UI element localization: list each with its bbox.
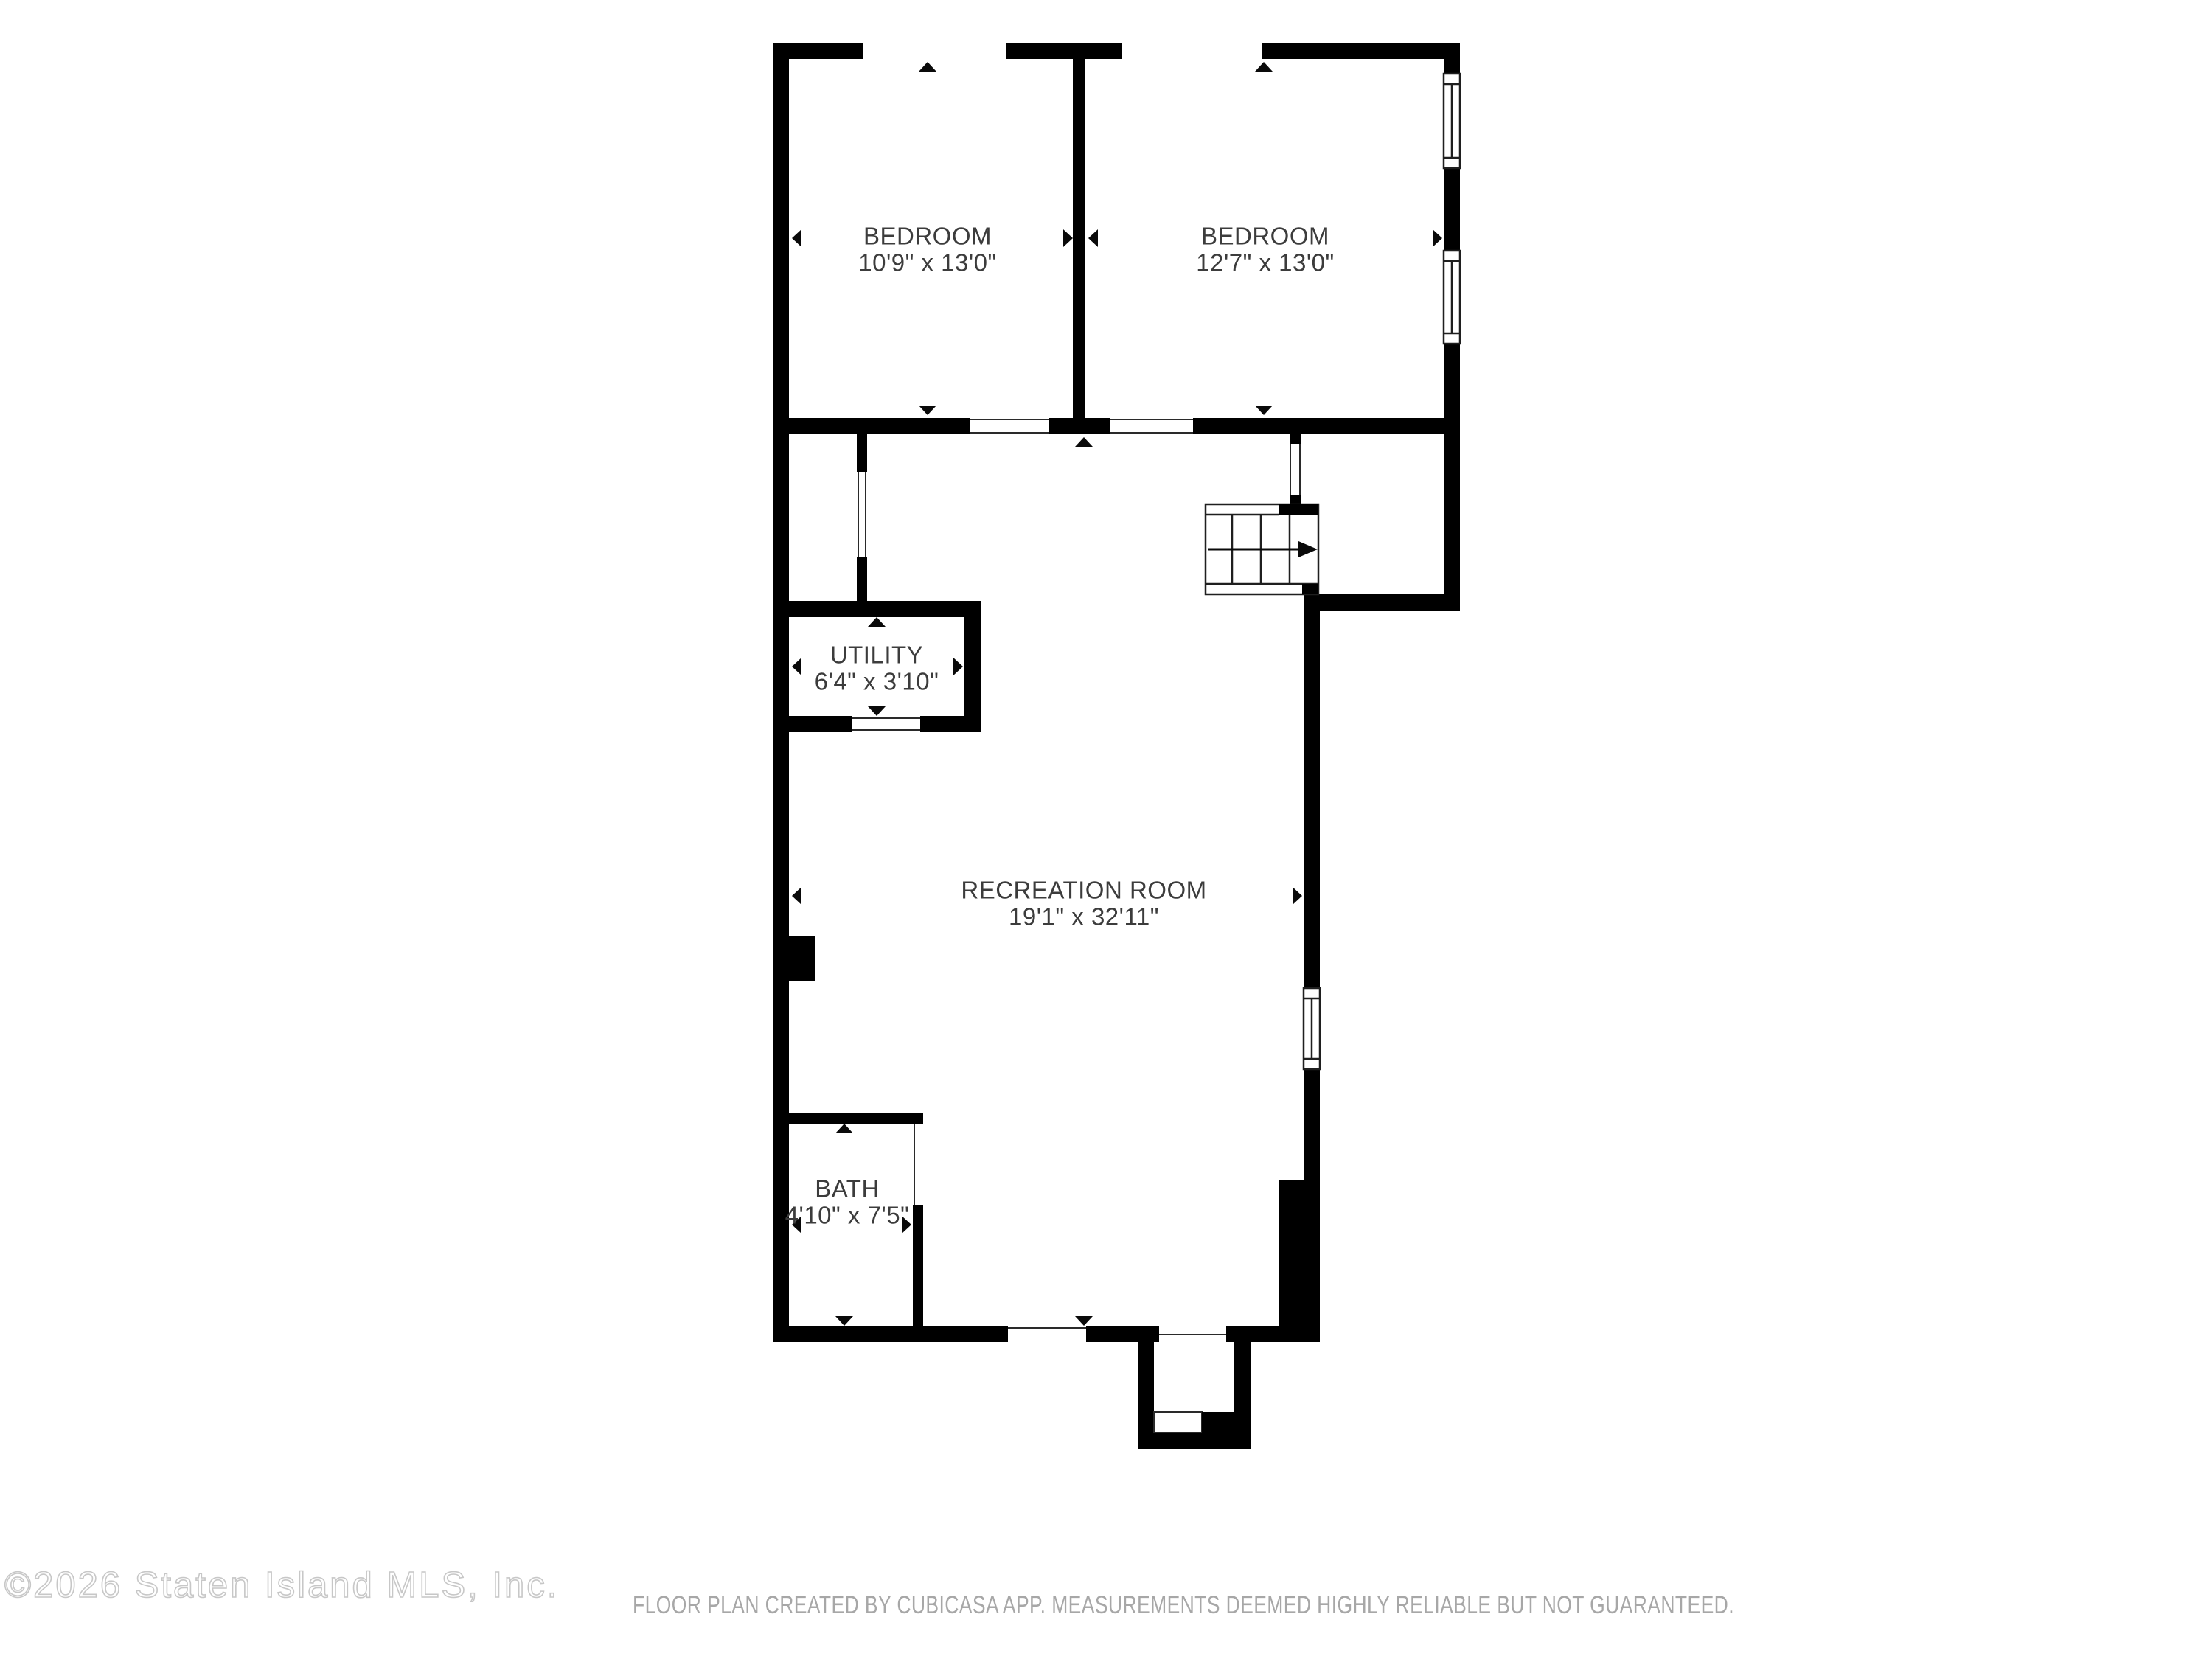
dimension-arrow-icon	[868, 617, 886, 627]
room-label-bath: BATH	[815, 1175, 880, 1203]
porch-step	[1154, 1412, 1202, 1433]
dimension-arrow-icon	[1255, 406, 1273, 415]
knee-wall	[1290, 441, 1300, 498]
wall-segment	[1086, 1326, 1159, 1342]
porch-step-side	[1202, 1412, 1234, 1433]
room-dims-recreation: 19'1" x 32'11"	[1009, 903, 1159, 931]
entry-porch	[1138, 1342, 1251, 1449]
dimension-arrow-icon	[792, 887, 801, 905]
dimension-arrow-icon	[919, 62, 936, 72]
staircase	[1206, 434, 1318, 594]
dimension-arrow-icon	[919, 406, 936, 415]
wall-segment	[773, 716, 852, 732]
room-label-utility: UTILITY	[830, 641, 923, 669]
wall-segment	[964, 601, 981, 732]
chimney-block	[1279, 1180, 1320, 1342]
room-label-bedroom-1: BEDROOM	[863, 223, 992, 250]
dimension-arrow-icon	[1255, 62, 1273, 72]
stair-top-wall	[1279, 504, 1318, 515]
window-icon	[1444, 251, 1460, 344]
wall-segment	[1262, 43, 1460, 59]
dimension-arrow-icon	[1433, 229, 1442, 247]
floor-plan-page: { "floor_plan": { "rooms": { "bedroom1":…	[0, 0, 2212, 1659]
knee-wall-cap	[1290, 495, 1301, 504]
wall-segment	[773, 601, 981, 617]
window-icon	[1304, 988, 1320, 1069]
wall-segment	[920, 716, 981, 732]
porch-wall-bottom	[1138, 1433, 1251, 1449]
copyright-watermark: ©2026 Staten Island MLS, Inc.	[4, 1565, 559, 1606]
wall-segment	[1049, 418, 1110, 434]
wall-segment	[857, 557, 867, 601]
knee-wall-cap	[1290, 434, 1301, 444]
wall-segment	[913, 1113, 923, 1124]
dimension-arrow-icon	[792, 658, 801, 675]
wall-segment	[773, 1113, 923, 1124]
dimension-arrow-icon	[1063, 229, 1073, 247]
wall-segment	[1193, 418, 1460, 434]
stair-bottom-wall	[1302, 584, 1318, 594]
dimension-arrow-icon	[1075, 437, 1093, 447]
wall-segment	[773, 43, 789, 1342]
window-icon	[1444, 74, 1460, 168]
wall-segment	[773, 1326, 1008, 1342]
room-dims-bedroom-2: 12'7" x 13'0"	[1196, 249, 1334, 276]
dimension-arrow-icon	[868, 706, 886, 716]
wall-segment	[913, 1205, 923, 1326]
wall-segment	[1073, 59, 1085, 418]
dimension-arrow-icon	[953, 658, 963, 675]
wall-segment	[857, 434, 867, 472]
floorplan-disclaimer: FLOOR PLAN CREATED BY CUBICASA APP. MEAS…	[633, 1591, 1734, 1620]
wall-notch-block	[782, 936, 815, 981]
dimension-arrow-icon	[1075, 1316, 1093, 1326]
room-dims-bath: 4'10" x 7'5"	[785, 1202, 910, 1229]
dimension-arrow-icon	[1293, 887, 1302, 905]
wall-segment	[1006, 43, 1122, 59]
wall-segment	[1304, 594, 1460, 611]
room-label-bedroom-2: BEDROOM	[1201, 223, 1329, 250]
dimension-arrow-icon	[792, 229, 801, 247]
room-label-recreation: RECREATION ROOM	[961, 877, 1206, 904]
dimension-arrow-icon	[1088, 229, 1098, 247]
room-dims-utility: 6'4" x 3'10"	[815, 668, 939, 695]
dimension-arrow-icon	[835, 1316, 853, 1326]
room-dims-bedroom-1: 10'9" x 13'0"	[858, 249, 996, 276]
floor-plan-drawing: BEDROOM 10'9" x 13'0" BEDROOM 12'7" x 13…	[0, 0, 2212, 1659]
dimension-arrow-icon	[835, 1124, 853, 1133]
wall-segment	[773, 418, 970, 434]
room-labels: BEDROOM 10'9" x 13'0" BEDROOM 12'7" x 13…	[785, 223, 1335, 1229]
